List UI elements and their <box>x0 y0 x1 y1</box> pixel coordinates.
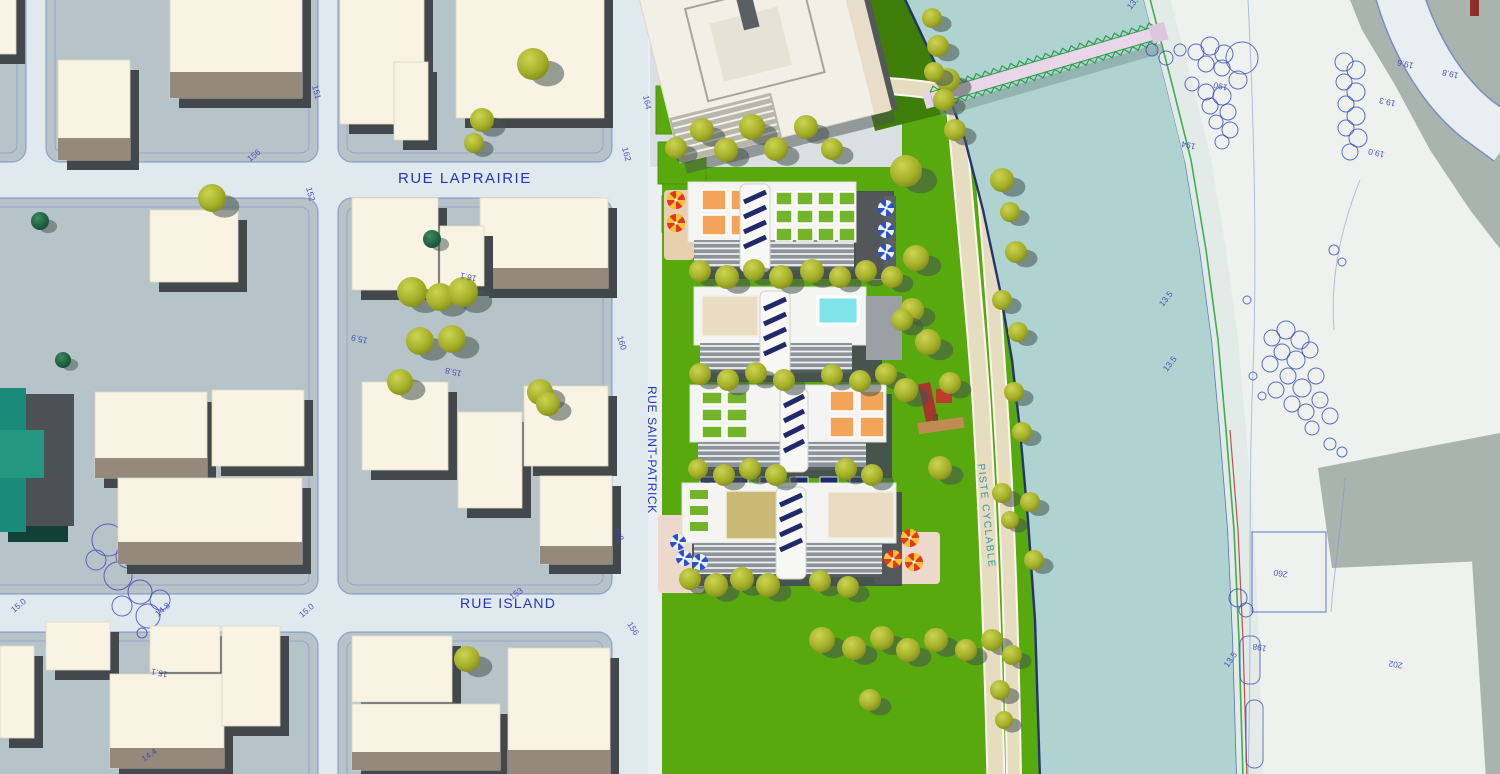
site-plan-canvas: RUE LAPRAIRIERUE ISLANDRUE SAINT-PATRICK… <box>0 0 1500 774</box>
existing-building <box>0 646 43 748</box>
existing-building <box>110 674 233 774</box>
patio-umbrella <box>676 550 692 566</box>
green-strip <box>690 490 708 499</box>
patio-umbrella <box>878 222 894 238</box>
existing-building <box>0 0 25 64</box>
patio-umbrella <box>901 529 919 547</box>
existing-building <box>222 626 289 736</box>
existing-building <box>46 622 119 680</box>
existing-building <box>58 60 139 170</box>
condo-building <box>670 477 923 586</box>
street-label-island: RUE ISLAND <box>460 595 556 611</box>
patio-umbrella <box>667 191 685 209</box>
patio-umbrella <box>667 214 685 232</box>
teal-church-building <box>0 388 74 542</box>
patio-umbrella <box>878 200 894 216</box>
solar-tower <box>776 487 806 579</box>
condo-building <box>690 385 892 478</box>
existing-building <box>394 62 437 150</box>
patio-umbrella <box>884 550 902 568</box>
existing-building <box>458 412 531 518</box>
patio-umbrella <box>905 553 923 571</box>
green-strip <box>690 522 708 531</box>
roof-terrace-panel <box>702 296 758 336</box>
roof-terrace-panel <box>828 492 894 538</box>
existing-building <box>150 210 247 292</box>
condo-building <box>694 287 902 382</box>
existing-building <box>352 636 461 712</box>
existing-building <box>170 0 311 108</box>
existing-building <box>540 476 621 574</box>
green-strip <box>690 506 708 515</box>
rooftop-pool <box>818 297 858 324</box>
existing-building <box>508 648 619 774</box>
existing-building <box>118 478 311 574</box>
site-plan-screenshot: RUE LAPRAIRIERUE ISLANDRUE SAINT-PATRICK… <box>0 0 1500 774</box>
street-label-saint-patrick: RUE SAINT-PATRICK <box>645 386 659 514</box>
patio-umbrella <box>670 534 686 550</box>
solar-tower <box>760 291 790 375</box>
solar-tower <box>780 388 808 472</box>
street-label-laprairie: RUE LAPRAIRIE <box>398 170 532 187</box>
existing-building <box>352 704 509 774</box>
solar-tower <box>740 184 770 272</box>
patio-umbrella <box>692 554 708 570</box>
existing-building <box>212 390 313 476</box>
existing-building <box>95 392 216 488</box>
patio-umbrella <box>878 244 894 260</box>
existing-building <box>480 198 617 298</box>
